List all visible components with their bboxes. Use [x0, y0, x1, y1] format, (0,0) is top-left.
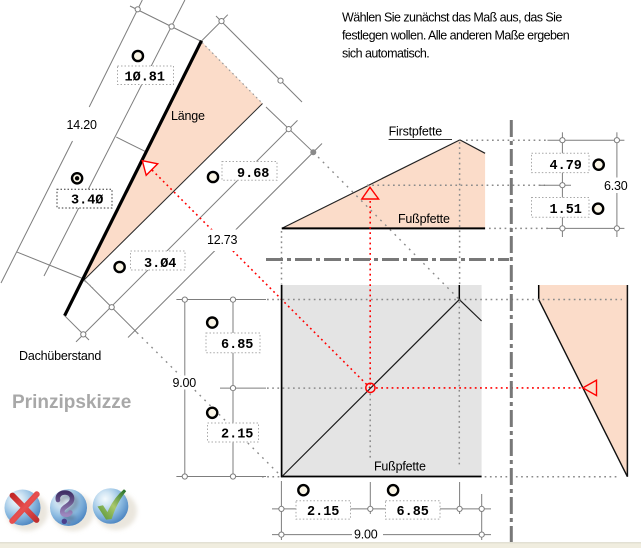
svg-text:Firstpfette: Firstpfette: [389, 125, 443, 139]
svg-text:3.4Ø: 3.4Ø: [71, 194, 103, 209]
svg-text:6.30: 6.30: [604, 179, 628, 193]
svg-text:2.15: 2.15: [307, 505, 339, 520]
svg-text:1Ø.81: 1Ø.81: [125, 71, 166, 86]
svg-text:4.79: 4.79: [550, 159, 582, 174]
svg-text:14.20: 14.20: [67, 118, 98, 132]
svg-text:3.Ø4: 3.Ø4: [144, 257, 176, 272]
svg-text:Wählen Sie zunächst das Maß au: Wählen Sie zunächst das Maß aus, das Sie: [342, 11, 562, 25]
svg-text:6.85: 6.85: [221, 338, 253, 353]
svg-text:1.51: 1.51: [550, 203, 582, 218]
svg-text:sich automatisch.: sich automatisch.: [342, 47, 429, 61]
svg-text:Dachüberstand: Dachüberstand: [19, 349, 101, 363]
svg-text:9.00: 9.00: [354, 528, 378, 542]
svg-text:9.68: 9.68: [237, 167, 269, 182]
svg-text:2.15: 2.15: [221, 428, 253, 443]
svg-text:6.85: 6.85: [397, 505, 429, 520]
svg-text:9.00: 9.00: [173, 376, 197, 390]
svg-text:Fußpfette: Fußpfette: [374, 460, 426, 474]
svg-text:Prinzipskizze: Prinzipskizze: [12, 392, 131, 413]
svg-text:12.73: 12.73: [207, 233, 238, 247]
svg-text:festlegen wollen. Alle anderen: festlegen wollen. Alle anderen Maße erge…: [342, 29, 570, 43]
svg-text:Fußpfette: Fußpfette: [398, 212, 450, 226]
svg-text:Länge: Länge: [171, 109, 205, 123]
